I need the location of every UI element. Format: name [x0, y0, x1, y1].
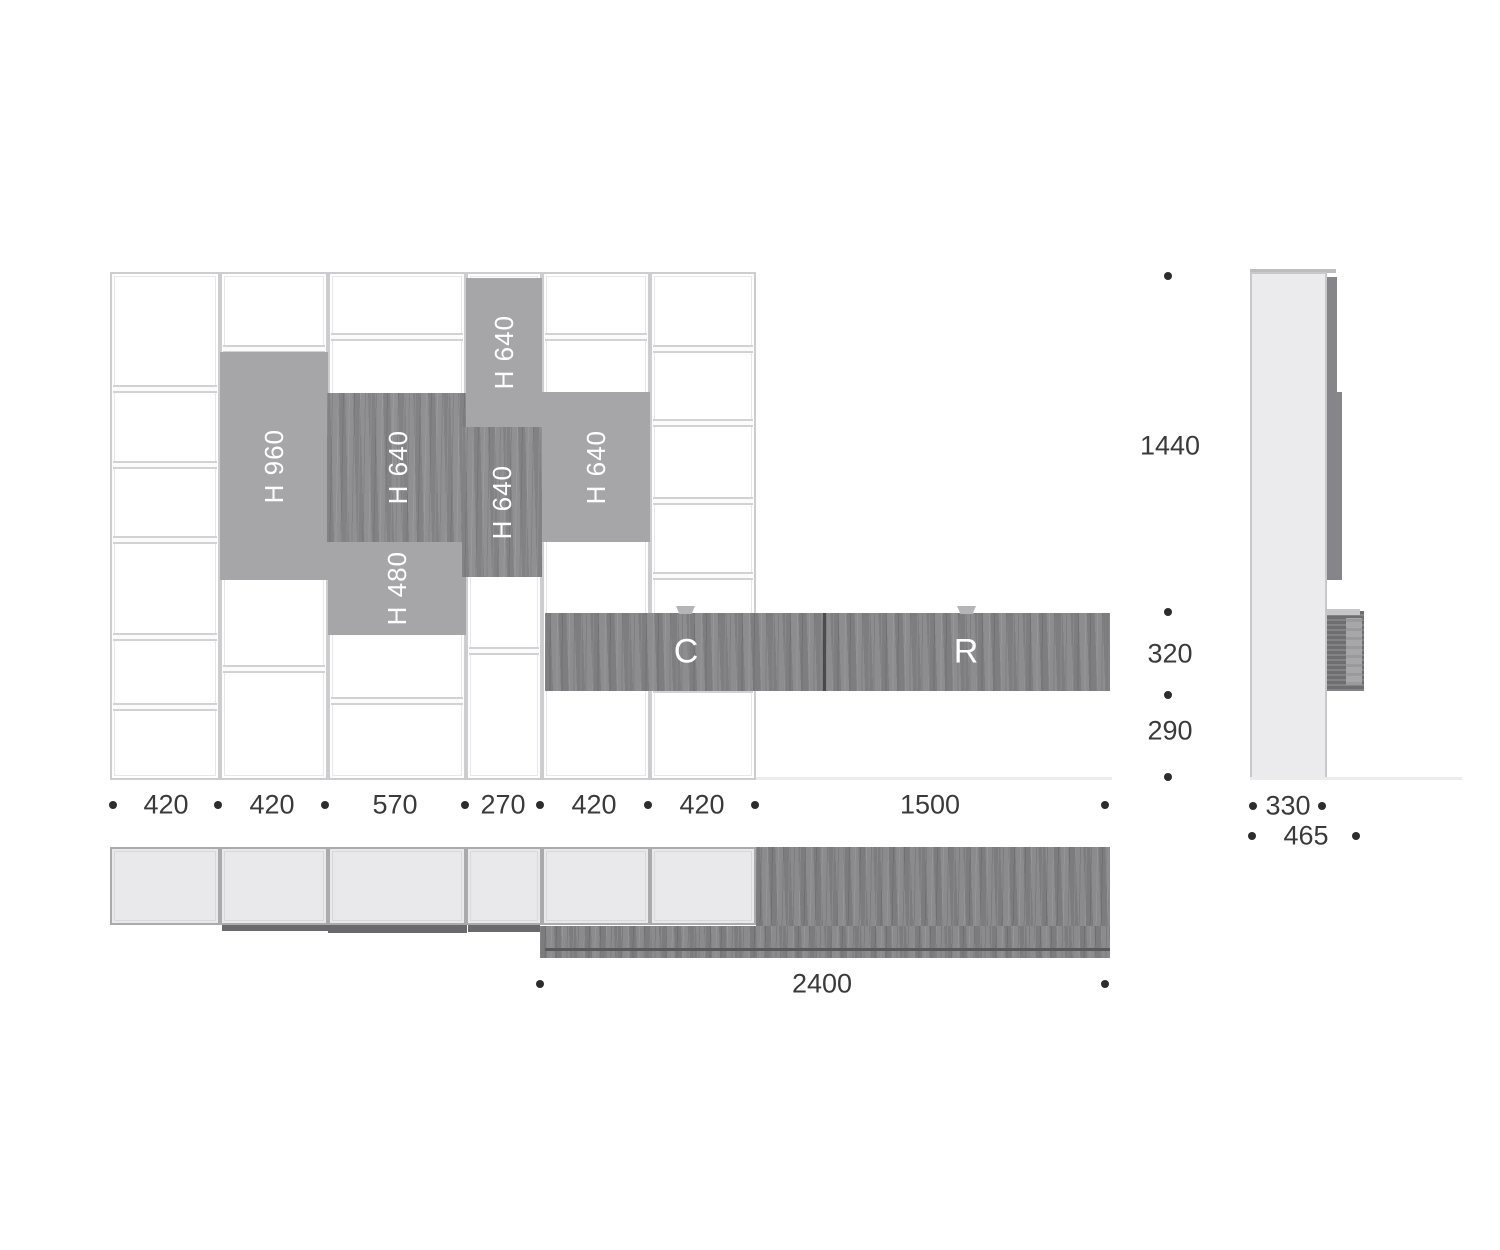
- dim-dot: [1318, 802, 1326, 810]
- plan-cabinet-edge-line: [545, 948, 1110, 951]
- shelf-line: [113, 461, 217, 469]
- dim-label: 1440: [1140, 431, 1200, 462]
- dim-dot: [751, 801, 759, 809]
- panel-h640-wood: H 640: [327, 393, 470, 542]
- plan-module-4: [466, 847, 542, 925]
- plan-module-2: [220, 847, 328, 925]
- side-cabinet-lip: [1327, 609, 1360, 615]
- cabinet-label-r: R: [954, 633, 979, 672]
- dim-label: 420: [249, 790, 294, 821]
- panel-h480: H 480: [328, 542, 466, 635]
- dim-dot: [1249, 802, 1257, 810]
- shelf-line: [113, 633, 217, 641]
- dim-dot: [1164, 608, 1172, 616]
- cabinet-label-c: C: [674, 633, 699, 672]
- panel-label: H 480: [382, 551, 413, 625]
- side-depth-strip-lower: [1327, 392, 1342, 580]
- dim-dot: [1164, 773, 1172, 781]
- shelf-line: [113, 703, 217, 711]
- dim-dot: [1352, 832, 1360, 840]
- dim-dot: [536, 801, 544, 809]
- cabinet-divider: [823, 613, 826, 691]
- shelf-line: [653, 345, 753, 353]
- dim-dot: [536, 980, 544, 988]
- dim-dot: [321, 801, 329, 809]
- plan-module-1: [110, 847, 220, 925]
- shelf-line: [469, 647, 539, 655]
- panel-label: H 960: [259, 429, 290, 503]
- shelf-line: [331, 333, 463, 341]
- panel-label: H 640: [383, 430, 414, 504]
- dim-dot: [109, 801, 117, 809]
- side-depth-strip-upper: [1327, 277, 1337, 392]
- dim-label: 1500: [900, 790, 960, 821]
- shelf-line: [331, 697, 463, 705]
- plan-panel-edge: [328, 925, 467, 933]
- dim-dot: [1248, 832, 1256, 840]
- panel-label: H 640: [487, 465, 518, 539]
- dim-label: 420: [571, 790, 616, 821]
- furniture-dimension-diagram: H 960 H 640 H 480 H 640 H 640 H 640 C R: [0, 0, 1500, 1250]
- dim-dot: [1101, 980, 1109, 988]
- shelf-line: [653, 419, 753, 427]
- column-inner-keyline: [114, 276, 216, 776]
- reference-baseline: [756, 777, 1112, 780]
- side-cabinet-face: [1346, 618, 1362, 685]
- dim-label: 420: [679, 790, 724, 821]
- shelf-column-6: [650, 272, 756, 780]
- dim-dot: [461, 801, 469, 809]
- plan-panel-edge: [468, 925, 540, 932]
- panel-label: H 640: [489, 315, 520, 389]
- panel-label: H 640: [581, 430, 612, 504]
- dim-label: 2400: [792, 969, 852, 1000]
- dim-dot: [214, 801, 222, 809]
- shelf-line: [653, 572, 753, 580]
- dim-label: 420: [143, 790, 188, 821]
- dim-dot: [1164, 691, 1172, 699]
- plan-module-5: [542, 847, 650, 925]
- panel-h640-wood-2: H 640: [462, 427, 542, 577]
- dim-label: 290: [1147, 716, 1192, 747]
- dim-label: 570: [372, 790, 417, 821]
- shelf-line: [223, 665, 325, 673]
- dim-dot: [1101, 801, 1109, 809]
- plan-panel-edge: [222, 925, 328, 931]
- dim-label: 465: [1283, 821, 1328, 852]
- shelf-line: [653, 497, 753, 505]
- panel-h640-right: H 640: [542, 392, 650, 542]
- shelf-line: [545, 333, 647, 341]
- mount-bracket-mark: [957, 606, 976, 614]
- shelf-line: [113, 536, 217, 544]
- dim-label: 270: [480, 790, 525, 821]
- plan-cabinet-block: [756, 847, 1110, 928]
- side-baseline: [1250, 777, 1462, 780]
- shelf-line: [113, 385, 217, 393]
- plan-module-3: [328, 847, 466, 925]
- dim-dot: [644, 801, 652, 809]
- mount-bracket-mark: [676, 606, 695, 614]
- panel-h960: H 960: [220, 352, 328, 580]
- dim-label: 330: [1265, 791, 1310, 822]
- plan-module-6: [650, 847, 756, 925]
- plan-cabinet-front: [540, 926, 1110, 958]
- dim-dot: [1164, 272, 1172, 280]
- shelf-column-1: [110, 272, 220, 780]
- dim-label: 320: [1147, 639, 1192, 670]
- hanging-cabinet: C R: [545, 613, 1110, 691]
- panel-h640-top: H 640: [466, 278, 542, 427]
- side-panel: [1250, 272, 1327, 779]
